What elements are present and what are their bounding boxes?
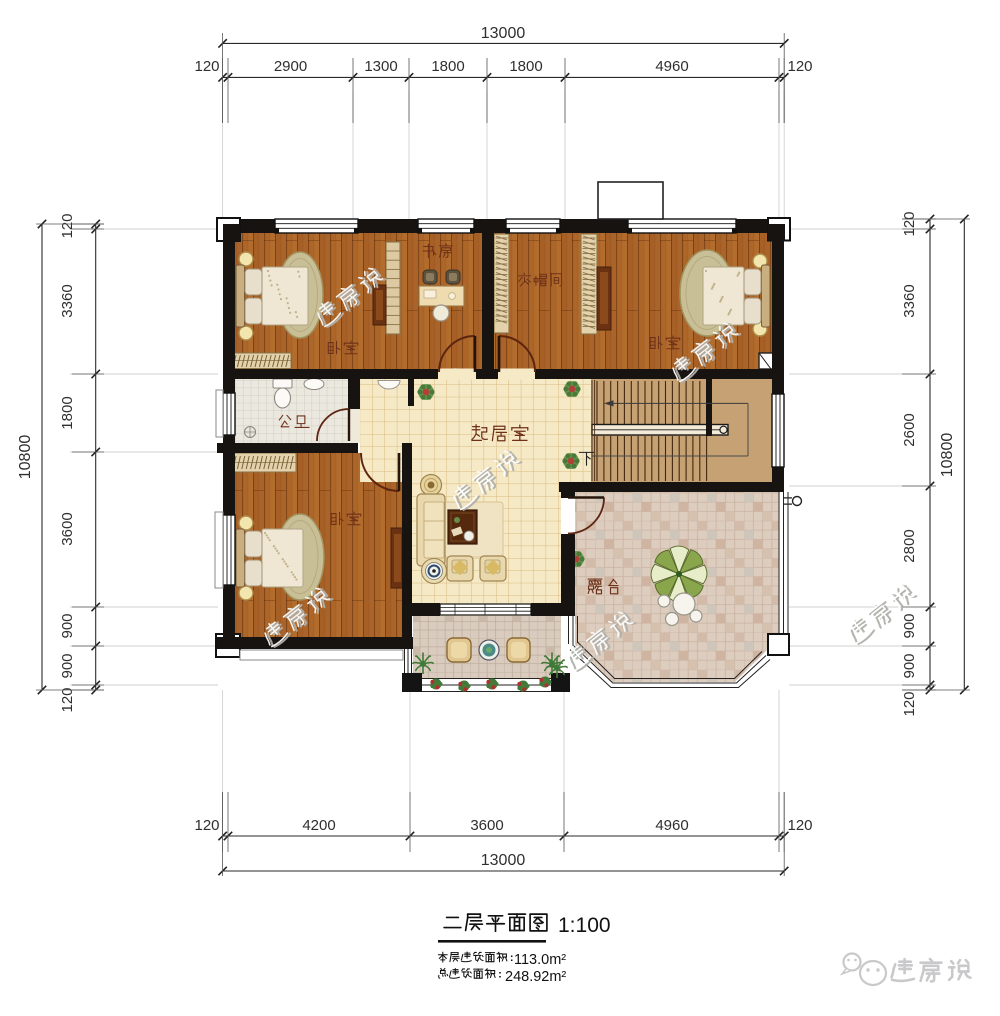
svg-text:4960: 4960 (655, 58, 688, 75)
svg-text:2900: 2900 (274, 58, 307, 75)
svg-text:1800: 1800 (431, 58, 464, 75)
svg-text:900: 900 (901, 653, 918, 678)
svg-text:1800: 1800 (509, 58, 542, 75)
svg-text:10800: 10800 (17, 435, 34, 480)
svg-text:3360: 3360 (901, 284, 918, 317)
svg-text:10800: 10800 (939, 433, 956, 478)
svg-text:13000: 13000 (481, 852, 526, 869)
svg-text:4960: 4960 (655, 817, 688, 834)
svg-text:900: 900 (59, 613, 76, 638)
svg-text:2800: 2800 (901, 529, 918, 562)
svg-text:900: 900 (901, 613, 918, 638)
svg-text:4200: 4200 (302, 817, 335, 834)
svg-text:3600: 3600 (470, 817, 503, 834)
svg-text:120: 120 (901, 211, 918, 236)
svg-text:1:100: 1:100 (558, 914, 611, 937)
svg-text:3600: 3600 (59, 512, 76, 545)
svg-text:113.0m²: 113.0m² (514, 952, 566, 968)
svg-text:120: 120 (787, 817, 812, 834)
svg-text:1300: 1300 (364, 58, 397, 75)
svg-text:120: 120 (787, 58, 812, 75)
svg-text:120: 120 (194, 817, 219, 834)
svg-text:3360: 3360 (59, 284, 76, 317)
svg-text:2600: 2600 (901, 413, 918, 446)
svg-text:120: 120 (194, 58, 219, 75)
svg-text::: : (498, 969, 502, 981)
svg-text:13000: 13000 (481, 25, 526, 42)
svg-text:1800: 1800 (59, 396, 76, 429)
svg-text:120: 120 (901, 691, 918, 716)
svg-text:248.92m²: 248.92m² (505, 969, 566, 985)
svg-text:900: 900 (59, 653, 76, 678)
svg-text:120: 120 (59, 213, 76, 238)
svg-text:120: 120 (59, 687, 76, 712)
